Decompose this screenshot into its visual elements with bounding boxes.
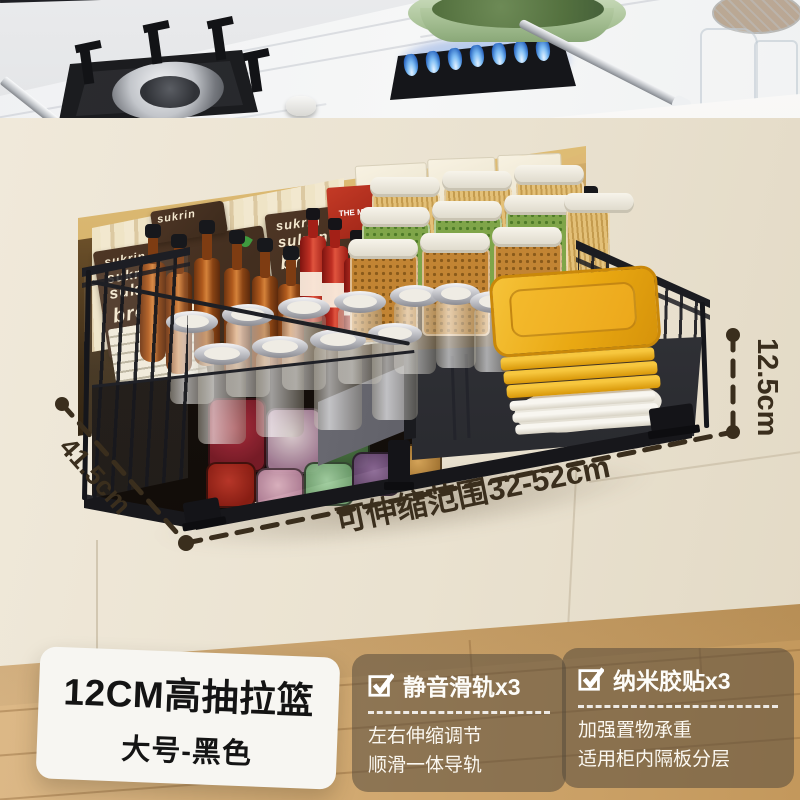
badge-subtitle: 大号-黑色 — [121, 725, 253, 772]
mounting-foot — [649, 403, 696, 433]
feature-title: 静音滑轨x3 — [403, 668, 521, 702]
burner-ring-center — [140, 76, 200, 108]
feature-title-row: 纳米胶贴x3 — [578, 662, 778, 696]
feature-title-row: 静音滑轨x3 — [368, 668, 550, 702]
feature-desc: 顺滑一体导轨 — [368, 751, 550, 780]
rail-bracket — [388, 440, 410, 484]
mounting-foot — [182, 497, 221, 525]
feature-desc: 加强置物承重 — [578, 716, 778, 745]
stove-knob — [286, 96, 316, 116]
spice-jar — [436, 298, 476, 368]
product-image: sukrin sukrin sukrin bread mix sukrin su… — [0, 0, 800, 800]
dashed-divider — [368, 711, 550, 714]
checkbox-icon — [368, 672, 394, 698]
yellow-plate — [489, 265, 662, 359]
feature-panel-adhesive: 纳米胶贴x3 加强置物承重 适用柜内隔板分层 — [562, 648, 794, 788]
product-badge: 12CM高抽拉篮 大号-黑色 — [36, 646, 341, 789]
feature-desc: 适用柜内隔板分层 — [578, 745, 778, 774]
dashed-divider — [578, 705, 778, 708]
feature-title: 纳米胶贴x3 — [613, 662, 731, 696]
checkbox-icon — [578, 666, 604, 692]
badge-title: 12CM高抽拉篮 — [63, 661, 316, 725]
feature-desc: 左右伸缩调节 — [368, 722, 550, 751]
feature-panel-slide-rails: 静音滑轨x3 左右伸缩调节 顺滑一体导轨 — [352, 654, 566, 792]
